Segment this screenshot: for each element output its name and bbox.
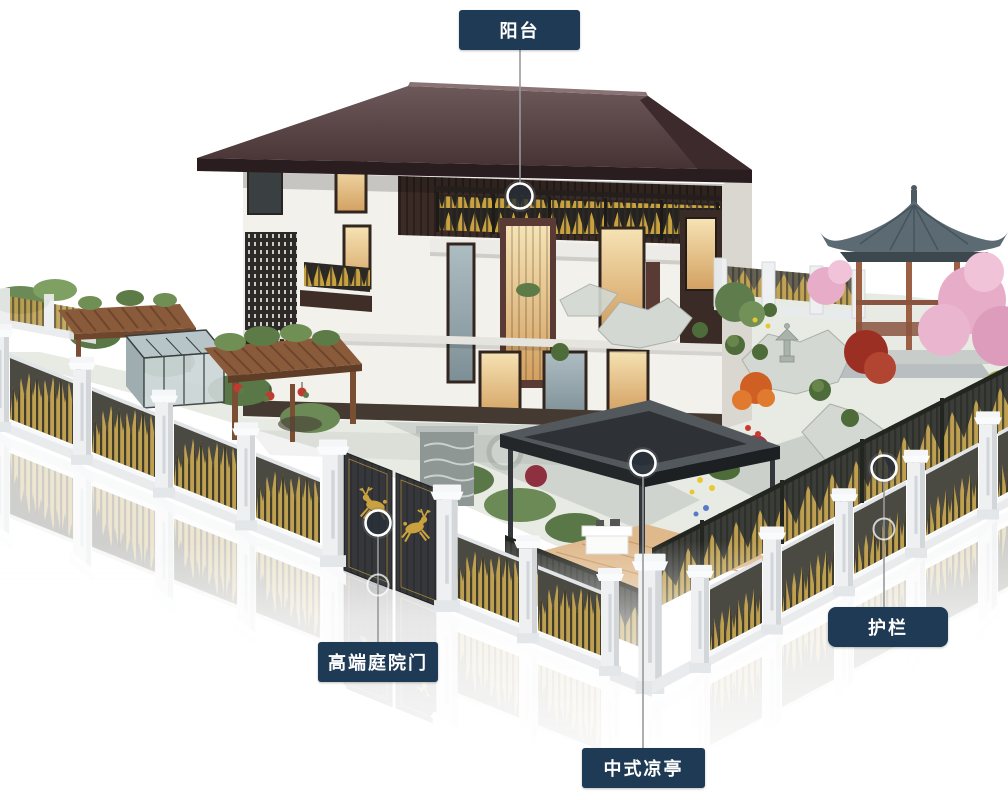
callout-marker-guardrail[interactable]: [869, 453, 899, 483]
gazebo-roof: [820, 185, 1008, 262]
callout-label-balcony[interactable]: 阳台: [459, 10, 580, 50]
callout-label-gate[interactable]: 高端庭院门: [318, 642, 438, 682]
callout-marker-reflection: [874, 519, 895, 540]
callout-label-guardrail[interactable]: 护栏: [828, 607, 948, 647]
callout-marker-balcony[interactable]: [505, 181, 535, 211]
callout-text: 中式凉亭: [604, 755, 684, 781]
callout-marker-gate[interactable]: [363, 508, 393, 538]
house-roof: [197, 82, 752, 183]
callout-text: 阳台: [500, 17, 540, 43]
callout-label-pavilion[interactable]: 中式凉亭: [582, 748, 705, 788]
callout-text: 高端庭院门: [328, 649, 428, 675]
callout-marker-reflection: [368, 575, 389, 596]
callout-text: 护栏: [868, 614, 908, 640]
annotated-villa-rendering: 阳台 高端庭院门 中式凉亭 护栏: [0, 0, 1008, 800]
villa-illustration: [0, 0, 1008, 800]
callout-marker-pavilion[interactable]: [628, 448, 658, 478]
